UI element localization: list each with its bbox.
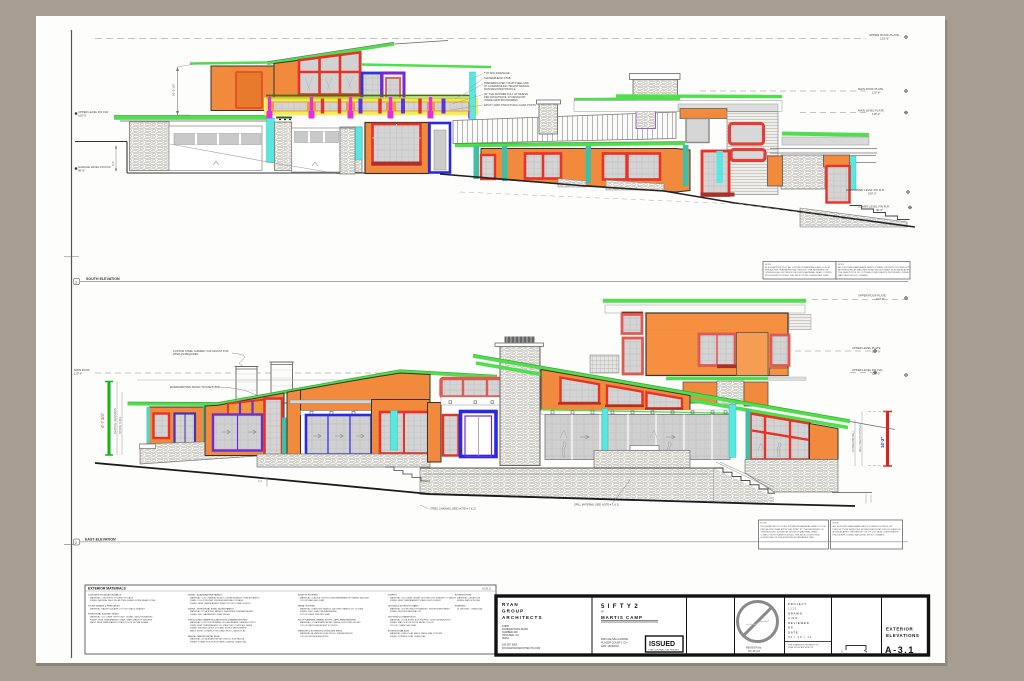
svg-text:STRUCTURAL TIMBER/GLULAM POSTS: STRUCTURAL TIMBER/GLULAM POSTS & BEAMS E… bbox=[188, 618, 248, 621]
svg-text:FASCIA - PAINTED METAL EDGE: FASCIA - PAINTED METAL EDGE bbox=[188, 635, 220, 638]
svg-text:GROUP: GROUP bbox=[502, 609, 524, 614]
svg-text:COMPLY WITH SUBSTITUTE ALL THE: COMPLY WITH SUBSTITUTE ALL THE SELECTION… bbox=[761, 533, 820, 536]
svg-text:EDGE OF ROOFING: EDGE OF ROOFING bbox=[298, 595, 318, 597]
svg-text:CONCRETE FOUNDATION WALLS: CONCRETE FOUNDATION WALLS bbox=[88, 594, 122, 597]
svg-text:PRODUCTS BE IMPROVED AT MATCHE: PRODUCTS BE IMPROVED AT MATCHES ROAD WOO… bbox=[833, 528, 901, 531]
svg-text:NOTE: NOTE bbox=[765, 264, 772, 266]
svg-text:WALL HEIGHT CONTROL: WALL HEIGHT CONTROL bbox=[859, 423, 862, 452]
svg-text:SPRING PLATE: SPRING PLATE bbox=[119, 416, 122, 434]
svg-text:03 | 28 | 12: 03 | 28 | 12 bbox=[748, 650, 761, 653]
svg-text:INSIDE GRID BOUNDARIES: INSIDE GRID BOUNDARIES bbox=[484, 98, 518, 102]
svg-text:TYP SNO DRAINAGE: TYP SNO DRAINAGE bbox=[484, 71, 510, 75]
svg-text:FINISH: MATCH SIDING: FINISH: MATCH SIDING bbox=[457, 599, 480, 602]
svg-text:BR: BR bbox=[788, 626, 794, 630]
svg-text:SHOWERHEAD STUB: SHOWERHEAD STUB bbox=[484, 76, 511, 80]
svg-text:COLOR: MATCH ADJACENT ROOFING: COLOR: MATCH ADJACENT ROOFING bbox=[300, 624, 338, 627]
svg-text:MATERIAL: 1x6 CLEAR TIGHT KNOT: MATERIAL: 1x6 CLEAR TIGHT KNOT CEDAR, SM… bbox=[90, 616, 153, 619]
svg-text:MATERIAL: STANDING SEAM 24 GA: MATERIAL: STANDING SEAM 24 GA STEEL PANE… bbox=[300, 607, 364, 610]
svg-text:NOTE: NOTE bbox=[761, 523, 768, 525]
svg-text:24 GA STEEL, CHARCOAL: 24 GA STEEL, CHARCOAL bbox=[457, 607, 483, 610]
svg-text:METAL ROOFING: METAL ROOFING bbox=[298, 605, 315, 608]
svg-text:MATERIAL: NATIVE SQUARE CUT DR: MATERIAL: NATIVE SQUARE CUT DRY STACK GR… bbox=[90, 607, 146, 610]
svg-text:MATERIAL: 24 GA BRAKE METAL OV: MATERIAL: 24 GA BRAKE METAL OVER 2x SUB … bbox=[190, 638, 245, 641]
svg-text:EAST ELEVATION: EAST ELEVATION bbox=[85, 538, 116, 542]
svg-text:OPENINGS ALL EXTERIOR DECISION: OPENINGS ALL EXTERIOR DECISION MATERIAL … bbox=[765, 271, 833, 274]
svg-text:MATCHING SPOUT COMBED: MATCHING SPOUT COMBED bbox=[838, 274, 868, 277]
svg-text:GUIDELINES OF THE EXISTING BOU: GUIDELINES OF THE EXISTING BOUNDARIES LI… bbox=[761, 536, 815, 539]
svg-text:SOFFITS: SOFFITS bbox=[388, 595, 397, 597]
svg-text:MATERIAL: STEEL FLAT BAR & CAB: MATERIAL: STEEL FLAT BAR & CABLE RAIL SY… bbox=[390, 632, 442, 635]
svg-text:REVIEWED: REVIEWED bbox=[788, 621, 810, 625]
svg-text:PROVIDERS JOINED MATCHING SPOU: PROVIDERS JOINED MATCHING SPOUT COMBED bbox=[833, 533, 885, 536]
svg-text:FLASHING: FLASHING bbox=[455, 605, 466, 608]
svg-text:96'-6": 96'-6" bbox=[78, 168, 85, 172]
svg-text:MATERIAL: 22 GA STEEL PANELS,: MATERIAL: 22 GA STEEL PANELS, RHEINZINK … bbox=[190, 610, 254, 613]
svg-text:10'-5 1/2": 10'-5 1/2" bbox=[172, 83, 176, 96]
svg-text:PLACER COUNTY, CA: PLACER COUNTY, CA bbox=[601, 642, 627, 645]
svg-text:MATERIAL: 1x6 CLEAR CEDAR T&G: MATERIAL: 1x6 CLEAR CEDAR T&G SMOOTH, ST… bbox=[390, 596, 456, 599]
svg-text:ROOF FLASHING, GRAVEL STOPS, C: ROOF FLASHING, GRAVEL STOPS, CAPS, PENET… bbox=[298, 618, 357, 621]
svg-text:MATERIAL: DOUG FIR RESAWN GLUL: MATERIAL: DOUG FIR RESAWN GLULAM BEAMS, … bbox=[190, 621, 256, 624]
svg-text:OPENINGS ALL EXTERIOR DECISION: OPENINGS ALL EXTERIOR DECISION MATERIAL … bbox=[761, 531, 819, 534]
svg-text:FINISH: KYNAR FLUOROPOLYMER CO: FINISH: KYNAR FLUOROPOLYMER COATING CHAR… bbox=[190, 641, 247, 644]
svg-text:FINISH: SIKKENS CETOL LOG AND: FINISH: SIKKENS CETOL LOG AND SIDING SAT… bbox=[190, 627, 247, 630]
svg-text:RYANGROUPARCHITECTS.COM: RYANGROUPARCHITECTS.COM bbox=[502, 647, 540, 650]
svg-text:ALIGN AL A FEV THE PAINTSTYLE: ALIGN AL A FEV THE PAINTSTYLE OF COTTAGE… bbox=[833, 531, 900, 534]
svg-text:FINISH: MILL GALVANIZED GRAY F: FINISH: MILL GALVANIZED GRAY FINISH bbox=[190, 613, 230, 616]
svg-text:ISSUED: ISSUED bbox=[649, 641, 675, 648]
svg-text:100'-0": 100'-0" bbox=[868, 191, 877, 195]
svg-text:MATERIAL: CONCRETE, POURED IN: MATERIAL: CONCRETE, POURED IN PLACE bbox=[90, 596, 134, 599]
svg-text:STEEL CHANNEL (SEE NOTE # 1 &: STEEL CHANNEL (SEE NOTE # 1 & 2) bbox=[430, 507, 476, 511]
svg-text:IN ELEVATIONS PLOT ALL EXTERIO: IN ELEVATIONS PLOT ALL EXTERIOR MATERIAL… bbox=[765, 266, 830, 269]
svg-text:100'-0": 100'-0" bbox=[78, 113, 87, 117]
svg-text:EXTERIOR MATERIALS: EXTERIOR MATERIALS bbox=[88, 587, 127, 591]
svg-text:PER AS-PER YEAR APPROVAL PRINT: PER AS-PER YEAR APPROVAL PRINT BY THE RE… bbox=[761, 528, 825, 531]
svg-text:FINISH: PENOFIN NATURAL OIL: FINISH: PENOFIN NATURAL OIL bbox=[390, 610, 422, 613]
svg-text:PAINT: SEMI TRANSPARENT ST: PAINT: SEMI TRANSPARENT STAIN COLOR DK W… bbox=[90, 621, 149, 624]
svg-text:113'-6": 113'-6" bbox=[74, 371, 82, 375]
svg-text:PROJECT: PROJECT bbox=[788, 602, 807, 606]
svg-text:1112: 1112 bbox=[788, 607, 797, 611]
svg-text:VERTICAL DIMENSION: VERTICAL DIMENSION bbox=[114, 408, 117, 434]
svg-text:WIND AS REQUIRED: WIND AS REQUIRED bbox=[173, 352, 198, 356]
svg-text:GUTTERS & DOWNSPOUTS: GUTTERS & DOWNSPOUTS bbox=[388, 617, 416, 619]
svg-text:LOWER LEVEL FIN FLR: LOWER LEVEL FIN FLR bbox=[858, 205, 889, 209]
svg-text:COLOR: BRONZE ANODIZED: COLOR: BRONZE ANODIZED bbox=[300, 635, 329, 638]
svg-text:14'-2": 14'-2" bbox=[880, 437, 885, 448]
svg-text:COLOR: DARK PEWTER GRAY: COLOR: DARK PEWTER GRAY bbox=[300, 613, 331, 616]
svg-text:ELEVATIONS: ELEVATIONS bbox=[886, 633, 919, 638]
svg-text:3'-6": 3'-6" bbox=[112, 161, 115, 166]
svg-text:NOTE: NOTE bbox=[838, 264, 845, 266]
svg-text:EXTERIOR RAILINGS: EXTERIOR RAILINGS bbox=[388, 629, 410, 632]
svg-text:MATERIAL: 1x10 CHANNEL RUSTIC: MATERIAL: 1x10 CHANNEL RUSTIC CEDAR BOAR… bbox=[190, 596, 260, 599]
svg-text:A|HG: A|HG bbox=[788, 616, 798, 620]
svg-text:EXTERIOR TRIM: EXTERIOR TRIM bbox=[455, 595, 472, 597]
svg-text:WITH SUBSTITUTE ALL THE SELECT: WITH SUBSTITUTE ALL THE SELECTIONS GUIDE… bbox=[765, 274, 828, 277]
svg-text:SIDING - BOARD/BATTEN PANELS: SIDING - BOARD/BATTEN PANELS bbox=[188, 594, 222, 597]
svg-text:SIDING - HORIZONTAL STEEL SIDI: SIDING - HORIZONTAL STEEL SIDING PANELS bbox=[188, 607, 234, 610]
svg-text:FINISH: MATCH ROOF EDGE METAL: FINISH: MATCH ROOF EDGE METAL COLOR bbox=[390, 621, 434, 624]
svg-text:STAIN: SEMI TRANSPARENT OIL ST: STAIN: SEMI TRANSPARENT OIL STAIN TWO CO… bbox=[190, 624, 253, 627]
svg-text:COLOR: NATURAL GRAY: COLOR: NATURAL GRAY bbox=[300, 599, 325, 602]
svg-text:WINDOWS & EXTERIOR DOORS (SEE: WINDOWS & EXTERIOR DOORS (SEE SPEC) bbox=[298, 630, 343, 632]
svg-text:MATERIAL: 24 GA BRAKE METAL, H: MATERIAL: 24 GA BRAKE METAL, HEM ALL EXP… bbox=[300, 621, 361, 624]
svg-text:IN ELEVATIONS PLOT ALL EXTERIO: IN ELEVATIONS PLOT ALL EXTERIOR MATERIAL… bbox=[761, 525, 826, 528]
svg-text:BE IMPROVED AT MATCHES ROAD WO: BE IMPROVED AT MATCHES ROAD WOODS PAINT … bbox=[838, 269, 910, 272]
svg-text:MATERIAL: 24 GA STEEL BOX PROF: MATERIAL: 24 GA STEEL BOX PROFILE, CUSTO… bbox=[390, 618, 451, 621]
svg-text:SOUTH ELEVATION: SOUTH ELEVATION bbox=[86, 277, 120, 281]
svg-text:PAINT: STEEL CONNECTORS GRAY I: PAINT: STEEL CONNECTORS GRAY IRON COATED… bbox=[190, 630, 246, 633]
svg-text:MATERIAL: 2x6 IPE SMOOTH SANDE: MATERIAL: 2x6 IPE SMOOTH SANDED, HIDDEN … bbox=[390, 607, 450, 610]
svg-text:113'-6": 113'-6" bbox=[872, 90, 880, 94]
svg-text:MATERIAL: CLASS A TORCH DOWN M: MATERIAL: CLASS A TORCH DOWN MEMBRANE W/… bbox=[300, 596, 370, 599]
svg-text:FOR CONTRACTOR PRICING: FOR CONTRACTOR PRICING bbox=[649, 649, 680, 652]
svg-text:NOTE: NOTE bbox=[833, 523, 840, 525]
svg-text:1'-0: 1'-0 bbox=[258, 480, 263, 483]
svg-text:3: 3 bbox=[75, 280, 77, 284]
svg-text:RYAN: RYAN bbox=[502, 602, 519, 607]
svg-text:MATERIAL: ALUMINUM CLAD WOOD,: MATERIAL: ALUMINUM CLAD WOOD, SIERRA PAC… bbox=[300, 632, 354, 635]
svg-text:03.28.12: 03.28.12 bbox=[482, 588, 492, 591]
svg-text:96161: 96161 bbox=[502, 637, 510, 640]
svg-text:ALL EXPOSED HARDWARE FASTS JOI: ALL EXPOSED HARDWARE FASTS JOINING LISTI… bbox=[833, 525, 893, 528]
svg-text:NON REGISTER PROFILE: NON REGISTER PROFILE bbox=[484, 87, 516, 91]
svg-text:123'-6": 123'-6" bbox=[876, 297, 885, 301]
svg-text:FINISH: SEMI TRANSPARENT STAIN: FINISH: SEMI TRANSPARENT STAIN LIGHT RUS… bbox=[390, 599, 442, 602]
svg-text:FINISH: POWDER COAT CHARCOAL: FINISH: POWDER COAT CHARCOAL bbox=[390, 635, 426, 638]
svg-text:RYAN GROUP ARCHITECTS: RYAN GROUP ARCHITECTS bbox=[788, 646, 814, 649]
svg-text:COLOR: CHARCOAL GRAY: COLOR: CHARCOAL GRAY bbox=[390, 624, 417, 627]
svg-text:HORIZONTAL SLATTED SIDING: HORIZONTAL SLATTED SIDING bbox=[88, 613, 119, 616]
svg-text:FINISH: SEMI TRANSPARENT ST: FINISH: SEMI TRANSPARENT STAIN "DARK WAL… bbox=[90, 618, 153, 621]
svg-text:A-3.1: A-3.1 bbox=[885, 645, 915, 655]
svg-text:MAIN/UPPER LEVEL FIN FLR: MAIN/UPPER LEVEL FIN FLR bbox=[846, 188, 884, 192]
svg-text:MARTIS CAMP: MARTIS CAMP bbox=[601, 615, 643, 620]
svg-text:SPILL MATERIAL (SEE NOTE # 1 &: SPILL MATERIAL (SEE NOTE # 1 & 2) bbox=[574, 503, 619, 507]
svg-text:5IFTY2: 5IFTY2 bbox=[601, 604, 641, 610]
svg-text:03 | 28 | 12: 03 | 28 | 12 bbox=[788, 635, 812, 639]
svg-text:APN: 19020019: APN: 19020019 bbox=[601, 645, 619, 648]
svg-text:PER AS-PER YEAR APPROVAL PRINT: PER AS-PER YEAR APPROVAL PRINT BY THE RE… bbox=[765, 269, 829, 272]
svg-text:DATE: DATE bbox=[788, 631, 799, 635]
svg-text:8354 VALHALLA DRIVE: 8354 VALHALLA DRIVE bbox=[601, 638, 628, 641]
svg-text:EXTERIOR: EXTERIOR bbox=[886, 627, 913, 632]
svg-text:STONE VENEER & FIREPLACES: STONE VENEER & FIREPLACES bbox=[88, 605, 120, 608]
svg-text:STAIN: COLOR RUSSET SIKKENS NA: STAIN: COLOR RUSSET SIKKENS NATURAL OIL … bbox=[190, 599, 244, 602]
svg-text:ALL EXPOSED HARDWARE FASTS JOI: ALL EXPOSED HARDWARE FASTS JOINING LISTI… bbox=[838, 266, 911, 269]
svg-text:4'-7 3/4": 4'-7 3/4" bbox=[100, 412, 105, 428]
svg-text:EPOXY GRID STRUCTURAL GUAR POS: EPOXY GRID STRUCTURAL GUAR POSTS bbox=[484, 103, 536, 107]
svg-text:DECKING & EXTERIOR STAIRS: DECKING & EXTERIOR STAIRS bbox=[388, 605, 419, 608]
svg-text:MATERIAL: CEDAR S4S: MATERIAL: CEDAR S4S bbox=[457, 596, 481, 599]
svg-text:90'-0": 90'-0" bbox=[876, 208, 883, 212]
svg-text:DRAWN: DRAWN bbox=[788, 612, 803, 616]
svg-text:AT WINDOW WALL: AT WINDOW WALL bbox=[852, 430, 855, 452]
svg-text:123'-6": 123'-6" bbox=[880, 37, 889, 41]
svg-text:FINISH: ZINC GRAY PREWEATHERED: FINISH: ZINC GRAY PREWEATHERED bbox=[300, 610, 338, 613]
svg-text:110'-0": 110'-0" bbox=[872, 112, 880, 116]
svg-text:THE PAINTSTYLE OF COTTAGE COMP: THE PAINTSTYLE OF COTTAGE COMPONENTS PRO… bbox=[838, 271, 910, 274]
svg-text:FINISH: SEMI TRANSPARENT STAIN: FINISH: SEMI TRANSPARENT STAIN COLOR TO … bbox=[190, 602, 252, 605]
svg-text:FINISH: NATURAL SMOOTH AS T: FINISH: NATURAL SMOOTH AS TRIM, BOARD FO… bbox=[90, 599, 156, 602]
svg-text:ARCHITECTS: ARCHITECTS bbox=[502, 615, 543, 620]
svg-text:2: 2 bbox=[75, 541, 77, 545]
